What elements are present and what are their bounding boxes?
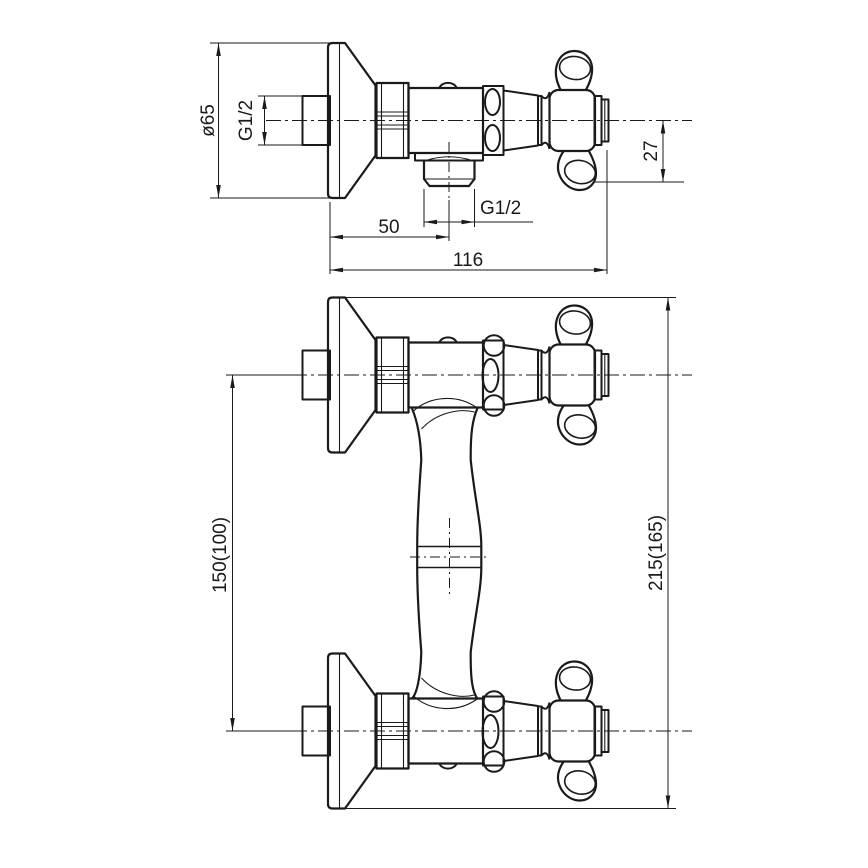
column-center-cross [410, 518, 489, 594]
dim-label-outlet-center: 50 [378, 217, 399, 238]
dim-label-connection-spacing: 150(100) [210, 517, 231, 593]
bonnet-ring-oval-top [485, 89, 500, 115]
dimension-outlet-center: 50 [330, 200, 449, 274]
detail-view: ø65 G1/2 27 G1/2 50 [198, 43, 692, 274]
dimension-outlet-thread: G1/2 [424, 189, 533, 227]
bonnet-ring-oval-bottom [485, 125, 500, 151]
detail-view-extras [415, 83, 500, 186]
connecting-column [410, 398, 489, 708]
dim-label-inlet-thread: G1/2 [236, 100, 257, 141]
dim-label-flange-diameter: ø65 [198, 104, 219, 137]
dim-label-handle-offset: 27 [641, 140, 662, 161]
technical-drawing-canvas: ø65 G1/2 27 G1/2 50 [0, 0, 868, 868]
dim-label-overall-height: 215(165) [646, 515, 667, 591]
dimension-connection-spacing: 150(100) [210, 375, 302, 731]
dim-label-overall-depth: 116 [453, 250, 483, 271]
column-left-edge [412, 409, 421, 699]
dim-label-outlet-thread: G1/2 [480, 198, 521, 219]
column-right-edge [471, 407, 482, 700]
assembly-view: 150(100) 215(165) [210, 298, 692, 809]
technical-drawing-page: ø65 G1/2 27 G1/2 50 [0, 0, 868, 868]
dimension-overall-height: 215(165) [345, 298, 676, 809]
